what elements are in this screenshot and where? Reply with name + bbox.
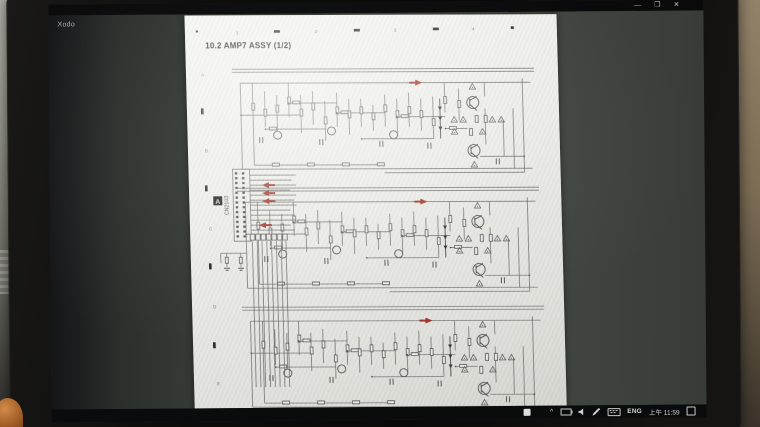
action-center-icon[interactable] [687,406,696,415]
svg-text:1: 1 [236,30,239,35]
monitor-bezel: — ❐ ✕ Xodo [6,0,741,427]
screen: — ❐ ✕ Xodo [48,0,706,423]
photo-of-monitor: — ❐ ✕ Xodo [0,0,760,427]
system-tray: ^ ENG 上午 11:59 [524,406,696,417]
keyboard-icon[interactable] [607,408,620,416]
volume-icon[interactable] [578,408,585,415]
document-page[interactable]: 1 2 3 4 A B [184,14,566,409]
schematic-drawing: 1 2 3 4 A B [184,14,566,409]
maximize-button[interactable]: ❐ [654,0,660,11]
svg-text:CN2103: CN2103 [224,196,231,216]
clock[interactable]: 上午 11:59 [649,406,680,416]
battery-icon[interactable] [560,408,571,415]
svg-text:A: A [201,72,204,77]
close-button[interactable]: ✕ [673,0,679,11]
svg-text:3: 3 [394,28,397,33]
schematic-title: 10.2 AMP7 ASSY (1/2) [205,41,291,50]
language-indicator[interactable]: ENG [627,408,642,415]
pdf-viewer-canvas[interactable]: Xodo [48,10,706,409]
svg-text:C: C [209,226,213,231]
taskbar-app-icon[interactable] [524,409,531,416]
sub-circuit [221,253,247,270]
grid-reference-top: 1 2 3 4 [196,26,514,35]
circuit-block-1 [232,68,537,173]
svg-text:D: D [213,304,217,309]
svg-text:E: E [217,381,220,386]
svg-text:4: 4 [472,26,475,31]
svg-text:2: 2 [315,29,318,34]
hidden-icons-chevron[interactable]: ^ [550,409,553,415]
pen-icon[interactable] [592,408,600,416]
app-title: Xodo [57,21,75,28]
minimize-button[interactable]: — [634,0,641,11]
svg-text:A: A [215,199,220,206]
window-controls: — ❐ ✕ [634,0,679,11]
grid-reference-left: A B C D E [200,72,220,386]
svg-text:B: B [205,148,208,153]
